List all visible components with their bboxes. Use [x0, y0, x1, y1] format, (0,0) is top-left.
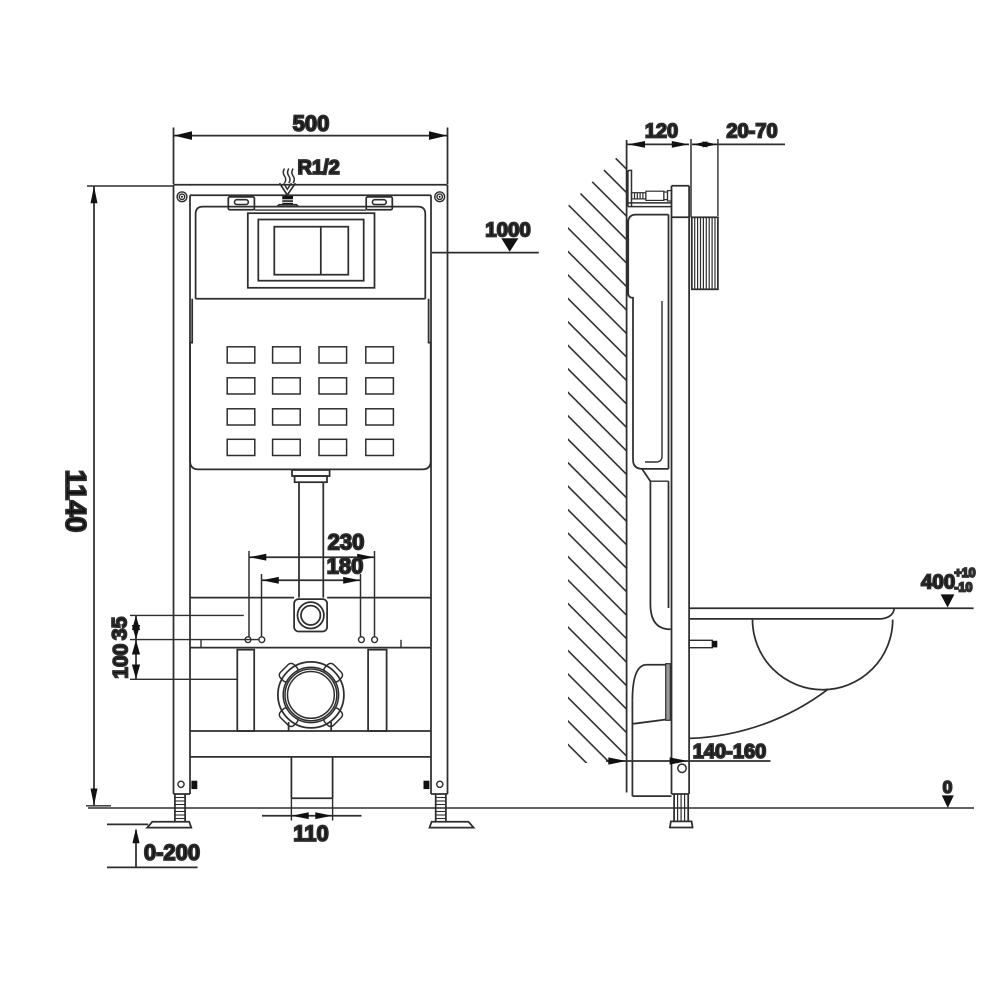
svg-text:140-160: 140-160 [693, 741, 766, 763]
svg-text:110: 110 [293, 821, 329, 846]
svg-text:230: 230 [328, 530, 365, 555]
svg-text:100: 100 [110, 644, 133, 679]
svg-text:180: 180 [327, 554, 364, 579]
svg-text:120: 120 [645, 121, 678, 143]
svg-text:400: 400 [921, 571, 955, 594]
svg-text:+10: +10 [954, 566, 975, 580]
svg-text:35: 35 [109, 616, 132, 640]
svg-text:500: 500 [293, 111, 330, 136]
svg-text:R1/2: R1/2 [298, 157, 340, 179]
svg-text:20-70: 20-70 [726, 121, 777, 143]
svg-text:1000: 1000 [485, 219, 531, 242]
svg-text:0-200: 0-200 [144, 840, 200, 865]
svg-text:0: 0 [943, 777, 953, 797]
svg-text:-10: -10 [954, 580, 972, 594]
svg-text:1140: 1140 [59, 470, 91, 533]
